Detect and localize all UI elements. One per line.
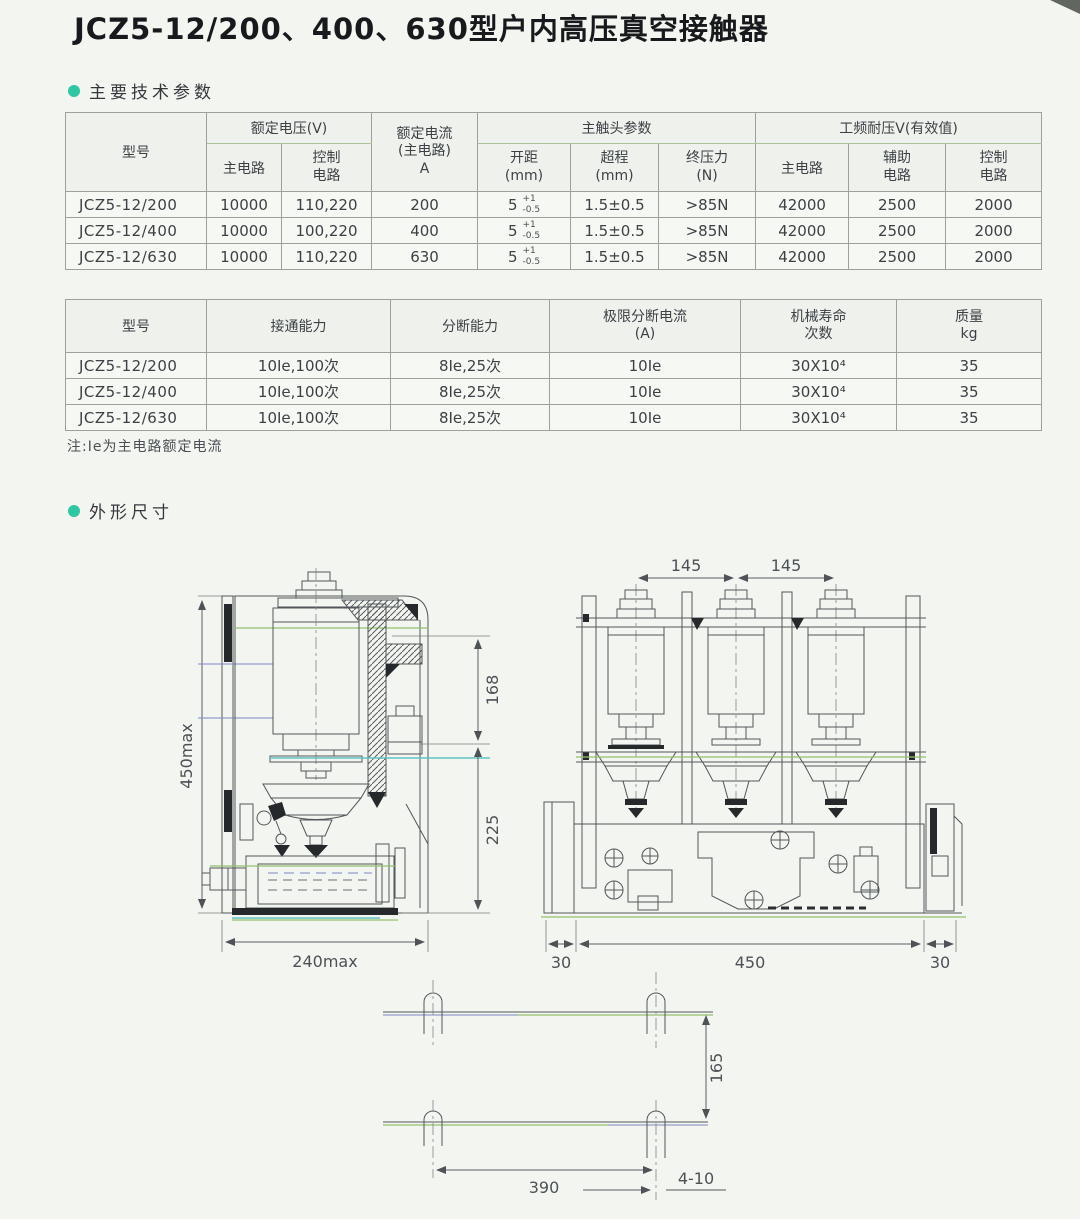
t1-r2-pressure: >85N bbox=[659, 244, 756, 270]
t2-r1-making: 10Ie,100次 bbox=[207, 379, 391, 405]
t2-h-mass: 质量 kg bbox=[897, 300, 1042, 353]
t1-h-withstand-control: 控制 电路 bbox=[946, 144, 1042, 192]
t2-r2-model: JCZ5-12/630 bbox=[66, 405, 207, 431]
tol-base: 5 bbox=[508, 222, 518, 240]
capacity-table: 型号 接通能力 分断能力 极限分断电流 (A) 机械寿命 次数 质量 kg JC… bbox=[65, 299, 1042, 431]
dim-hole-pitch-y: 165 bbox=[707, 1053, 726, 1084]
t1-r2-w-ctrl: 2000 bbox=[946, 244, 1042, 270]
dim-margin-right: 30 bbox=[930, 953, 950, 972]
tol-base: 5 bbox=[508, 196, 518, 214]
tol-base: 5 bbox=[508, 248, 518, 266]
dim-hole-pitch-x: 390 bbox=[529, 1178, 560, 1197]
section-outline-dimensions-label: 外形尺寸 bbox=[89, 498, 173, 523]
t2-r0-breaking: 8Ie,25次 bbox=[391, 353, 550, 379]
t2-r0-mass: 35 bbox=[897, 353, 1042, 379]
t1-h-final-pressure: 终压力 (N) bbox=[659, 144, 756, 192]
t2-r1-life: 30X10⁴ bbox=[741, 379, 897, 405]
t1-r0-w-main: 42000 bbox=[756, 192, 849, 218]
t1-r1-main-v: 10000 bbox=[207, 218, 282, 244]
t2-r1-limit: 10Ie bbox=[550, 379, 741, 405]
t1-r0-w-aux: 2500 bbox=[849, 192, 946, 218]
t1-h-withstand: 工频耐压V(有效值) bbox=[756, 113, 1042, 144]
table-row: JCZ5-12/200 10Ie,100次 8Ie,25次 10Ie 30X10… bbox=[66, 353, 1042, 379]
section-main-parameters-label: 主要技术参数 bbox=[89, 78, 215, 103]
t2-r2-limit: 10Ie bbox=[550, 405, 741, 431]
t2-h-breaking: 分断能力 bbox=[391, 300, 550, 353]
dim-overall-width: 240max bbox=[292, 952, 357, 970]
section-bullet-icon bbox=[68, 85, 80, 97]
main-params-table: 型号 额定电压(V) 额定电流 (主电路) A 主触头参数 工频耐压V(有效值)… bbox=[65, 112, 1042, 270]
t1-h-overtravel: 超程 (mm) bbox=[571, 144, 659, 192]
t1-h-rated-current: 额定电流 (主电路) A bbox=[372, 113, 478, 192]
t2-h-limit-current: 极限分断电流 (A) bbox=[550, 300, 741, 353]
t1-r2-w-main: 42000 bbox=[756, 244, 849, 270]
t1-h-model: 型号 bbox=[66, 113, 207, 192]
tol-sub: -0.5 bbox=[523, 257, 541, 268]
t1-r1-w-aux: 2500 bbox=[849, 218, 946, 244]
table-row: JCZ5-12/400 10000 100,220 400 5+1-0.5 1.… bbox=[66, 218, 1042, 244]
t1-r1-overtravel: 1.5±0.5 bbox=[571, 218, 659, 244]
t1-r0-opening: 5+1-0.5 bbox=[478, 192, 571, 218]
t1-r0-pressure: >85N bbox=[659, 192, 756, 218]
t2-r2-breaking: 8Ie,25次 bbox=[391, 405, 550, 431]
t2-r0-model: JCZ5-12/200 bbox=[66, 353, 207, 379]
tol-sup: +1 bbox=[523, 220, 541, 231]
section-main-parameters: 主要技术参数 bbox=[68, 78, 215, 103]
table-row: JCZ5-12/630 10000 110,220 630 5+1-0.5 1.… bbox=[66, 244, 1042, 270]
t2-r1-model: JCZ5-12/400 bbox=[66, 379, 207, 405]
datasheet-page: JCZ5-12/200、400、630型户内高压真空接触器 主要技术参数 型号 … bbox=[0, 0, 1080, 1219]
t2-r2-life: 30X10⁴ bbox=[741, 405, 897, 431]
t1-r0-current: 200 bbox=[372, 192, 478, 218]
tol-sub: -0.5 bbox=[523, 205, 541, 216]
t2-h-model: 型号 bbox=[66, 300, 207, 353]
t1-h-main-circuit: 主电路 bbox=[207, 144, 282, 192]
t1-r1-ctrl-v: 100,220 bbox=[282, 218, 372, 244]
t1-r0-main-v: 10000 bbox=[207, 192, 282, 218]
t1-r0-overtravel: 1.5±0.5 bbox=[571, 192, 659, 218]
t1-r2-model: JCZ5-12/630 bbox=[66, 244, 207, 270]
tol-sup: +1 bbox=[523, 246, 541, 257]
t1-h-control-circuit: 控制 电路 bbox=[282, 144, 372, 192]
side-view-drawing: 450max 168 225 240max bbox=[180, 568, 515, 970]
tol-sup: +1 bbox=[523, 194, 541, 205]
t1-r2-w-aux: 2500 bbox=[849, 244, 946, 270]
t2-r0-life: 30X10⁴ bbox=[741, 353, 897, 379]
t2-h-mech-life: 机械寿命 次数 bbox=[741, 300, 897, 353]
t1-r2-opening: 5+1-0.5 bbox=[478, 244, 571, 270]
t1-r2-current: 630 bbox=[372, 244, 478, 270]
t2-r0-limit: 10Ie bbox=[550, 353, 741, 379]
dim-overall-height: 450max bbox=[180, 723, 196, 788]
t2-h-making: 接通能力 bbox=[207, 300, 391, 353]
t1-r0-w-ctrl: 2000 bbox=[946, 192, 1042, 218]
dim-pole-pitch-right: 145 bbox=[771, 556, 802, 575]
t1-r1-pressure: >85N bbox=[659, 218, 756, 244]
t1-h-withstand-main: 主电路 bbox=[756, 144, 849, 192]
t2-r1-mass: 35 bbox=[897, 379, 1042, 405]
t2-r2-making: 10Ie,100次 bbox=[207, 405, 391, 431]
tol-sub: -0.5 bbox=[523, 231, 541, 242]
section-outline-dimensions: 外形尺寸 bbox=[68, 498, 173, 523]
dim-lower-section: 225 bbox=[483, 815, 502, 846]
table-row: JCZ5-12/200 10000 110,220 200 5+1-0.5 1.… bbox=[66, 192, 1042, 218]
t1-r1-w-main: 42000 bbox=[756, 218, 849, 244]
t1-r2-ctrl-v: 110,220 bbox=[282, 244, 372, 270]
t1-r1-opening: 5+1-0.5 bbox=[478, 218, 571, 244]
t2-r2-mass: 35 bbox=[897, 405, 1042, 431]
dim-mounting-holes: 4-10 bbox=[678, 1169, 714, 1188]
front-view-drawing: 145 145 30 450 30 bbox=[536, 556, 970, 976]
t1-r0-model: JCZ5-12/200 bbox=[66, 192, 207, 218]
t1-r1-w-ctrl: 2000 bbox=[946, 218, 1042, 244]
dim-pole-pitch-left: 145 bbox=[671, 556, 702, 575]
t2-r0-making: 10Ie,100次 bbox=[207, 353, 391, 379]
t1-h-opening: 开距 (mm) bbox=[478, 144, 571, 192]
t1-h-withstand-aux: 辅助 电路 bbox=[849, 144, 946, 192]
t1-r1-current: 400 bbox=[372, 218, 478, 244]
table-row: JCZ5-12/630 10Ie,100次 8Ie,25次 10Ie 30X10… bbox=[66, 405, 1042, 431]
t1-h-rated-voltage: 额定电压(V) bbox=[207, 113, 372, 144]
table-row: JCZ5-12/400 10Ie,100次 8Ie,25次 10Ie 30X10… bbox=[66, 379, 1042, 405]
t1-r2-overtravel: 1.5±0.5 bbox=[571, 244, 659, 270]
t1-r0-ctrl-v: 110,220 bbox=[282, 192, 372, 218]
section-bullet-icon bbox=[68, 505, 80, 517]
dim-upper-section: 168 bbox=[483, 675, 502, 706]
page-title: JCZ5-12/200、400、630型户内高压真空接触器 bbox=[74, 6, 769, 48]
mounting-plan-drawing: 165 390 4-10 bbox=[378, 960, 812, 1212]
footnote: 注:Ie为主电路额定电流 bbox=[67, 436, 222, 456]
t1-h-contact-params: 主触头参数 bbox=[478, 113, 756, 144]
t1-r1-model: JCZ5-12/400 bbox=[66, 218, 207, 244]
scan-artifact-corner bbox=[1050, 0, 1080, 14]
t1-r2-main-v: 10000 bbox=[207, 244, 282, 270]
t2-r1-breaking: 8Ie,25次 bbox=[391, 379, 550, 405]
